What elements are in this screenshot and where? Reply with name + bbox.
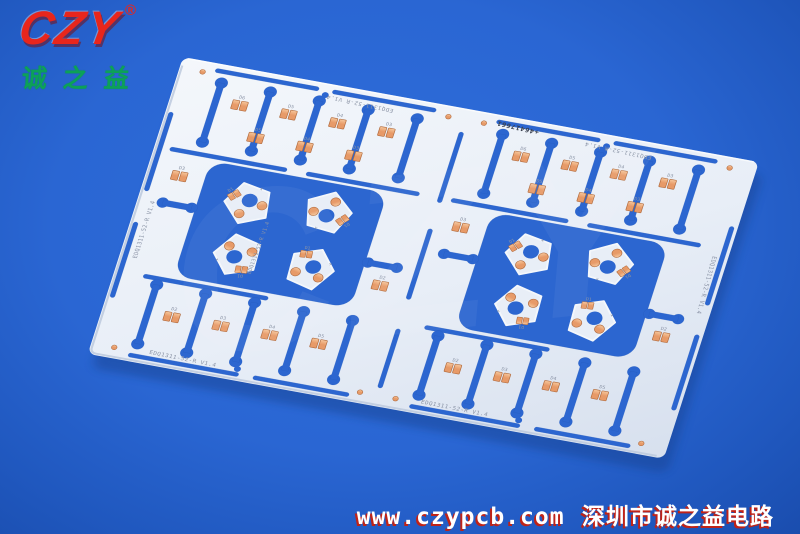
brand-text: CZY — [15, 0, 125, 55]
brand-logo: CZY® 诚之益 — [20, 0, 145, 95]
registered-mark-icon: ® — [125, 2, 136, 19]
product-photo: D6D5D4D3D5D4D3D1+D1+D1+D1+D3D2D2D3D4D5ED… — [0, 0, 800, 534]
watermark-company: 深圳市诚之益电路 — [582, 504, 774, 530]
brand-caption: 诚之益 — [21, 59, 147, 95]
watermark-url: www.czypcb.com — [357, 504, 565, 530]
pcb-panel: D6D5D4D3D5D4D3D1+D1+D1+D1+D3D2D2D3D4D5ED… — [88, 57, 759, 459]
watermark-text: www.czypcb.com 深圳市诚之益电路 — [357, 497, 774, 531]
